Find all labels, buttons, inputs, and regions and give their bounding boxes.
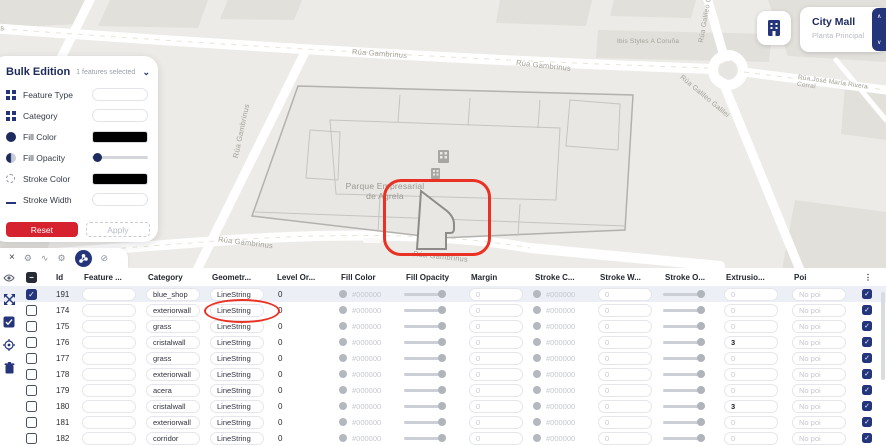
cell-stroke-opacity-slider[interactable] xyxy=(663,306,705,314)
row-flag-checkbox[interactable]: ✓ xyxy=(862,305,872,315)
color-dot-icon xyxy=(533,370,541,378)
chevron-down-icon[interactable]: ∨ xyxy=(877,39,881,46)
column-header: Stroke O... xyxy=(663,273,724,282)
cell-poi-input[interactable]: No poi xyxy=(792,288,846,301)
cell-fill-opacity-slider[interactable] xyxy=(404,322,446,330)
color-dot-icon xyxy=(339,306,347,314)
column-header: Geometr... xyxy=(210,273,275,282)
cell-feature-input[interactable] xyxy=(82,288,136,301)
cell-stroke-width-input[interactable]: 0 xyxy=(598,416,652,429)
row-checkbox[interactable] xyxy=(26,417,37,428)
disabled-icon[interactable]: ⊘ xyxy=(101,254,109,263)
cell-fill-opacity-slider[interactable] xyxy=(404,386,446,394)
cell-fill-opacity-slider[interactable] xyxy=(404,402,446,410)
cell-extrusion-input[interactable]: 0 xyxy=(724,352,778,365)
target-icon[interactable] xyxy=(2,338,16,352)
color-dot-icon xyxy=(339,434,347,442)
column-header: ⋮ xyxy=(862,273,882,282)
color-dot-icon xyxy=(533,322,541,330)
cell-extrusion-input[interactable]: 0 xyxy=(724,416,778,429)
row-flag-checkbox[interactable]: ✓ xyxy=(862,321,872,331)
cell-poi-input[interactable]: No poi xyxy=(792,352,846,365)
table-row[interactable]: 182 corridor LineString 0 #000000 0 #000… xyxy=(0,430,886,445)
feature-type-input[interactable] xyxy=(92,88,148,101)
cell-poi-input[interactable]: No poi xyxy=(792,336,846,349)
cell-fill-opacity-slider[interactable] xyxy=(404,434,446,442)
table-row[interactable]: 175 grass LineString 0 #000000 0 #000000… xyxy=(0,318,886,334)
cell-category-input[interactable]: acera xyxy=(146,384,200,397)
cell-fill-color[interactable]: #000000 xyxy=(339,354,404,363)
cell-geometry-input[interactable]: LineString xyxy=(210,368,264,381)
cell-fill-color[interactable]: #000000 xyxy=(339,386,404,395)
row-checkbox[interactable] xyxy=(26,401,37,412)
cell-category-input[interactable]: cristalwall xyxy=(146,336,200,349)
cell-geometry-input[interactable]: LineString xyxy=(210,416,264,429)
chevron-up-icon[interactable]: ∧ xyxy=(877,13,881,20)
table-row[interactable]: 177 grass LineString 0 #000000 0 #000000… xyxy=(0,350,886,366)
cell-feature-input[interactable] xyxy=(82,320,136,333)
cell-stroke-width-input[interactable]: 0 xyxy=(598,320,652,333)
cell-fill-opacity-slider[interactable] xyxy=(404,290,446,298)
cell-stroke-opacity-slider[interactable] xyxy=(663,290,705,298)
cell-fill-color[interactable]: #000000 xyxy=(339,322,404,331)
column-header: Feature ... xyxy=(82,273,146,282)
cell-stroke-color[interactable]: #000000 xyxy=(533,418,598,427)
cell-id: 178 xyxy=(46,370,82,379)
table-row[interactable]: 181 exteriorwall LineString 0 #000000 0 … xyxy=(0,414,886,430)
cell-margin-input[interactable]: 0 xyxy=(469,432,523,445)
cell-level: 0 xyxy=(275,434,339,443)
cell-extrusion-input[interactable]: 0 xyxy=(724,288,778,301)
cell-category-input[interactable]: corridor xyxy=(146,432,200,445)
cell-extrusion-input[interactable]: 0 xyxy=(724,368,778,381)
cell-id: 191 xyxy=(46,290,82,299)
cell-geometry-input[interactable]: LineString xyxy=(210,288,264,301)
color-dot-icon xyxy=(533,338,541,346)
route-icon[interactable]: ∿ xyxy=(41,254,49,263)
cell-poi-input[interactable]: No poi xyxy=(792,304,846,317)
color-dot-icon xyxy=(533,434,541,442)
cell-poi-input[interactable]: No poi xyxy=(792,416,846,429)
cell-fill-color[interactable]: #000000 xyxy=(339,418,404,427)
cell-category-input[interactable]: exteriorwall xyxy=(146,416,200,429)
building-icon-button[interactable] xyxy=(757,11,791,45)
graph-share-icon[interactable] xyxy=(75,250,92,267)
select-all-icon[interactable] xyxy=(2,315,16,329)
row-flag-checkbox[interactable]: ✓ xyxy=(862,433,872,443)
column-header: Fill Color xyxy=(339,273,404,282)
column-header: Level Or... xyxy=(275,273,339,282)
row-checkbox[interactable] xyxy=(26,321,37,332)
table-header-row: − IdFeature ...CategoryGeometr...Level O… xyxy=(0,268,886,286)
cell-geometry-input[interactable]: LineString xyxy=(210,432,264,445)
reset-button[interactable]: Reset xyxy=(6,222,78,237)
cell-geometry-input[interactable]: LineString xyxy=(210,400,264,413)
cell-level: 0 xyxy=(275,290,339,299)
row-checkbox[interactable]: ✓ xyxy=(26,289,37,300)
cell-category-input[interactable]: exteriorwall xyxy=(146,368,200,381)
table-row[interactable]: 178 exteriorwall LineString 0 #000000 0 … xyxy=(0,366,886,382)
color-dot-icon xyxy=(533,386,541,394)
cell-margin-input[interactable]: 0 xyxy=(469,320,523,333)
cell-margin-input[interactable]: 0 xyxy=(469,400,523,413)
cell-stroke-width-input[interactable]: 0 xyxy=(598,352,652,365)
row-flag-checkbox[interactable]: ✓ xyxy=(862,353,872,363)
cell-extrusion-input[interactable]: 0 xyxy=(724,432,778,445)
cell-category-input[interactable]: cristalwall xyxy=(146,400,200,413)
cell-feature-input[interactable] xyxy=(82,304,136,317)
map-highlight-annotation xyxy=(383,179,491,256)
cell-geometry-input[interactable]: LineString xyxy=(210,352,264,365)
bulk-edition-panel: Bulk Edition 1 features selected ⌄ Featu… xyxy=(0,56,158,242)
cell-stroke-opacity-slider[interactable] xyxy=(663,386,705,394)
cell-geometry-input[interactable]: LineString xyxy=(210,384,264,397)
cell-fill-color[interactable]: #000000 xyxy=(339,370,404,379)
cell-margin-input[interactable]: 0 xyxy=(469,368,523,381)
row-checkbox[interactable] xyxy=(26,433,37,444)
selection-count: 1 features selected xyxy=(76,69,135,76)
table-row[interactable]: 174 exteriorwall LineString 0 #000000 0 … xyxy=(0,302,886,318)
cell-margin-input[interactable]: 0 xyxy=(469,384,523,397)
column-header: Stroke W... xyxy=(598,273,663,282)
field-label: Feature Type xyxy=(23,90,73,100)
row-flag-checkbox[interactable]: ✓ xyxy=(862,289,872,299)
cell-id: 182 xyxy=(46,434,82,443)
cell-feature-input[interactable] xyxy=(82,384,136,397)
column-header: Extrusio... xyxy=(724,273,792,282)
field-label: Stroke Width xyxy=(23,195,72,205)
close-icon[interactable]: × xyxy=(9,253,15,263)
color-dot-icon xyxy=(533,418,541,426)
cell-id: 174 xyxy=(46,306,82,315)
cell-extrusion-input[interactable]: 0 xyxy=(724,320,778,333)
cell-poi-input[interactable]: No poi xyxy=(792,400,846,413)
color-dot-icon xyxy=(339,418,347,426)
cell-level: 0 xyxy=(275,386,339,395)
cell-feature-input[interactable] xyxy=(82,368,136,381)
row-checkbox[interactable] xyxy=(26,305,37,316)
cell-stroke-width-input[interactable]: 0 xyxy=(598,288,652,301)
stroke-color-swatch[interactable] xyxy=(92,173,148,185)
cell-id: 175 xyxy=(46,322,82,331)
cell-level: 0 xyxy=(275,418,339,427)
table-row[interactable]: 176 cristalwall LineString 0 #000000 0 #… xyxy=(0,334,886,350)
cell-stroke-opacity-slider[interactable] xyxy=(663,402,705,410)
level-selector[interactable]: ∧ ∨ xyxy=(872,8,886,51)
cell-id: 177 xyxy=(46,354,82,363)
panel-title: Bulk Edition xyxy=(6,66,70,78)
cell-fill-color[interactable]: #000000 xyxy=(339,290,404,299)
row-checkbox[interactable] xyxy=(26,353,37,364)
table-row[interactable]: 179 acera LineString 0 #000000 0 #000000… xyxy=(0,382,886,398)
color-dot-icon xyxy=(533,306,541,314)
cell-margin-input[interactable]: 0 xyxy=(469,352,523,365)
table-scrollbar[interactable] xyxy=(881,292,885,380)
cell-geometry-input[interactable]: LineString xyxy=(210,336,264,349)
cell-stroke-width-input[interactable]: 0 xyxy=(598,368,652,381)
cell-feature-input[interactable] xyxy=(82,352,136,365)
cell-stroke-color[interactable]: #000000 xyxy=(533,354,598,363)
trash-icon[interactable] xyxy=(2,361,16,375)
row-flag-checkbox[interactable]: ✓ xyxy=(862,385,872,395)
cell-level: 0 xyxy=(275,322,339,331)
cell-stroke-opacity-slider[interactable] xyxy=(663,322,705,330)
stroke-width-input[interactable] xyxy=(92,193,148,206)
collapse-chevron-icon[interactable]: ⌄ xyxy=(142,67,150,78)
table-row[interactable]: ✓ 191 blue_shop LineString 0 #000000 0 #… xyxy=(0,286,886,302)
column-header: Margin xyxy=(469,273,533,282)
cell-fill-opacity-slider[interactable] xyxy=(404,370,446,378)
cell-geometry-input[interactable]: LineString xyxy=(210,320,264,333)
cell-stroke-color[interactable]: #000000 xyxy=(533,370,598,379)
cell-stroke-width-input[interactable]: 0 xyxy=(598,400,652,413)
color-dot-icon xyxy=(339,402,347,410)
cell-poi-input[interactable]: No poi xyxy=(792,432,846,445)
cell-fill-opacity-slider[interactable] xyxy=(404,354,446,362)
cell-level: 0 xyxy=(275,354,339,363)
cell-category-input[interactable]: grass xyxy=(146,320,200,333)
fill-opacity-slider[interactable] xyxy=(92,153,148,162)
field-label: Fill Opacity xyxy=(23,153,65,163)
filled-circle-icon xyxy=(6,132,20,142)
select-all-checkbox[interactable]: − xyxy=(26,272,37,283)
row-checkbox[interactable] xyxy=(26,337,37,348)
table-toolbar: × ⚙ ∿ ⚙ ⊘ xyxy=(0,248,128,268)
cell-fill-color[interactable]: #000000 xyxy=(339,306,404,315)
cell-margin-input[interactable]: 0 xyxy=(469,288,523,301)
cell-poi-input[interactable]: No poi xyxy=(792,368,846,381)
cell-stroke-opacity-slider[interactable] xyxy=(663,370,705,378)
cell-fill-opacity-slider[interactable] xyxy=(404,306,446,314)
visibility-eye-icon[interactable] xyxy=(2,271,16,285)
cell-extrusion-input[interactable]: 3 xyxy=(724,336,778,349)
cell-stroke-color[interactable]: #000000 xyxy=(533,306,598,315)
field-label: Stroke Color xyxy=(23,174,70,184)
cell-feature-input[interactable] xyxy=(82,400,136,413)
color-dot-icon xyxy=(533,402,541,410)
gear-icon[interactable]: ⚙ xyxy=(24,254,32,263)
cell-category-input[interactable]: blue_shop xyxy=(146,288,200,301)
cell-stroke-opacity-slider[interactable] xyxy=(663,434,705,442)
row-flag-checkbox[interactable]: ✓ xyxy=(862,401,872,411)
cell-margin-input[interactable]: 0 xyxy=(469,336,523,349)
fit-arrows-icon[interactable] xyxy=(2,292,16,306)
cell-fill-color[interactable]: #000000 xyxy=(339,434,404,443)
cell-level: 0 xyxy=(275,370,339,379)
cell-poi-input[interactable]: No poi xyxy=(792,320,846,333)
cell-extrusion-input[interactable]: 0 xyxy=(724,384,778,397)
cell-fill-color[interactable]: #000000 xyxy=(339,338,404,347)
column-header: Id xyxy=(46,273,82,282)
cell-extrusion-input[interactable]: 3 xyxy=(724,400,778,413)
cell-id: 180 xyxy=(46,402,82,411)
field-label: Category xyxy=(23,111,58,121)
column-header: Fill Opacity xyxy=(404,273,469,282)
color-dot-icon xyxy=(339,290,347,298)
settings-icon[interactable]: ⚙ xyxy=(57,254,65,263)
cell-stroke-color[interactable]: #000000 xyxy=(533,386,598,395)
dashed-circle-icon xyxy=(6,174,20,183)
half-circle-icon xyxy=(6,153,20,163)
row-flag-checkbox[interactable]: ✓ xyxy=(862,369,872,379)
line-icon xyxy=(6,196,20,204)
color-dot-icon xyxy=(339,386,347,394)
row-flag-checkbox[interactable]: ✓ xyxy=(862,417,872,427)
cell-stroke-color[interactable]: #000000 xyxy=(533,290,598,299)
cell-level: 0 xyxy=(275,338,339,347)
cell-stroke-width-input[interactable]: 0 xyxy=(598,432,652,445)
cell-stroke-width-input[interactable]: 0 xyxy=(598,336,652,349)
table-side-strip xyxy=(2,271,20,375)
cell-level: 0 xyxy=(275,402,339,411)
cell-stroke-color[interactable]: #000000 xyxy=(533,402,598,411)
cell-feature-input[interactable] xyxy=(82,416,136,429)
cell-stroke-color[interactable]: #000000 xyxy=(533,338,598,347)
color-dot-icon xyxy=(533,354,541,362)
cell-stroke-width-input[interactable]: 0 xyxy=(598,384,652,397)
building-icon xyxy=(766,19,782,37)
cell-stroke-opacity-slider[interactable] xyxy=(663,354,705,362)
column-header: Poi xyxy=(792,273,862,282)
color-dot-icon xyxy=(339,322,347,330)
cell-id: 176 xyxy=(46,338,82,347)
cell-extrusion-input[interactable]: 0 xyxy=(724,304,778,317)
column-header: Stroke C... xyxy=(533,273,598,282)
category-input[interactable] xyxy=(92,109,148,122)
color-dot-icon xyxy=(339,370,347,378)
cell-stroke-opacity-slider[interactable] xyxy=(663,338,705,346)
color-dot-icon xyxy=(339,338,347,346)
row-checkbox[interactable] xyxy=(26,385,37,396)
cell-feature-input[interactable] xyxy=(82,432,136,445)
cell-poi-input[interactable]: No poi xyxy=(792,384,846,397)
cell-fill-opacity-slider[interactable] xyxy=(404,418,446,426)
row-flag-checkbox[interactable]: ✓ xyxy=(862,337,872,347)
table-row[interactable]: 180 cristalwall LineString 0 #000000 0 #… xyxy=(0,398,886,414)
table-sheet: − IdFeature ...CategoryGeometr...Level O… xyxy=(0,268,886,445)
grid-icon xyxy=(6,90,20,100)
cell-category-input[interactable]: exteriorwall xyxy=(146,304,200,317)
cell-id: 179 xyxy=(46,386,82,395)
cell-stroke-opacity-slider[interactable] xyxy=(663,418,705,426)
cell-feature-input[interactable] xyxy=(82,336,136,349)
cell-id: 181 xyxy=(46,418,82,427)
color-dot-icon xyxy=(339,354,347,362)
bulk-fields-scroll: Feature Type Category Fill Color Fill Op… xyxy=(6,84,150,214)
cell-stroke-width-input[interactable]: 0 xyxy=(598,304,652,317)
field-label: Fill Color xyxy=(23,132,57,142)
cell-level: 0 xyxy=(275,306,339,315)
building-label: Ibis Styles A Coruña xyxy=(617,38,679,45)
apply-button[interactable]: Apply xyxy=(86,222,150,237)
row-checkbox[interactable] xyxy=(26,369,37,380)
features-table-section: × ⚙ ∿ ⚙ ⊘ − xyxy=(0,248,886,445)
cell-margin-input[interactable]: 0 xyxy=(469,304,523,317)
grid-icon xyxy=(6,111,20,121)
cell-stroke-color[interactable]: #000000 xyxy=(533,322,598,331)
table-rows: ✓ 191 blue_shop LineString 0 #000000 0 #… xyxy=(0,286,886,445)
cell-category-input[interactable]: grass xyxy=(146,352,200,365)
column-header: Category xyxy=(146,273,210,282)
cell-stroke-color[interactable]: #000000 xyxy=(533,434,598,443)
fill-color-swatch[interactable] xyxy=(92,131,148,143)
cell-fill-opacity-slider[interactable] xyxy=(404,338,446,346)
cell-fill-color[interactable]: #000000 xyxy=(339,402,404,411)
cell-geometry-input[interactable]: LineString xyxy=(210,304,264,317)
cell-margin-input[interactable]: 0 xyxy=(469,416,523,429)
color-dot-icon xyxy=(533,290,541,298)
